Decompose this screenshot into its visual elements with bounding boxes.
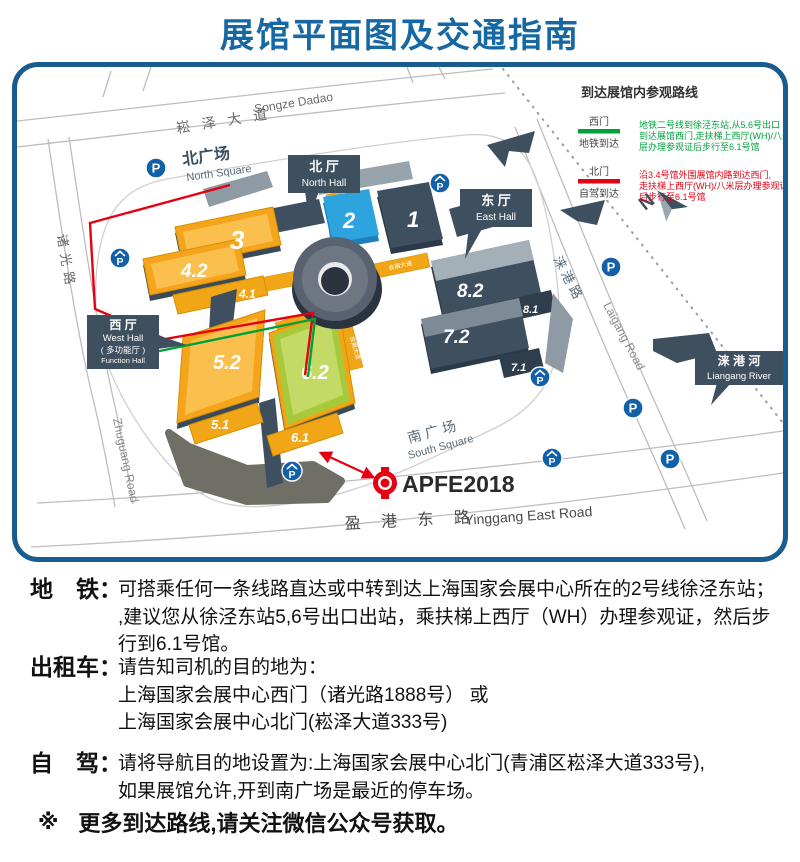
hall-8-2-label: 8.2 [457,281,484,302]
yinggang-road-label-cn: 盈 港 东 路 [344,508,478,533]
parking-covered-icon: P [430,173,450,193]
north-hall-label-cn: 北 厅 [309,159,339,174]
laigang-road-label-cn: 涞 港 路 [550,253,585,301]
apfe-logo-text: APFE2018 [402,471,515,497]
legend-drive-text: 沿3.4号馆外围展馆内路到达西门, [639,169,771,180]
svg-text:P: P [607,260,616,275]
legend-metro-mode: 地铁到达 [579,137,619,150]
legend-title: 到达展馆内参观路线 [581,85,698,100]
building-structure [560,200,605,225]
hall-4-2-label: 4.2 [180,261,208,282]
taxi-line-3: 上海国家会展中心北门(崧泽大道333号) [118,709,489,737]
parking-icon: P [601,257,621,277]
parking-icon: P [660,449,680,469]
yinggang-road-label-en: Yinggang East Road [464,503,593,528]
legend-metro-swatch [578,129,620,134]
svg-text:P: P [666,452,675,467]
north-square-label-cn: 北广场 [181,143,231,168]
svg-text:后步行至6.1号馆: 后步行至6.1号馆 [639,191,706,202]
legend-drive-swatch [578,179,620,184]
metro-line-2: ,建议您从徐泾东站5,6号出口出站，乘扶梯上西厅（WH）办理参观证，然后步 [118,604,775,632]
taxi-section-label: 出租车： [30,654,118,681]
parking-covered-icon: P [110,248,130,268]
legend-metro-gate: 西门 [589,115,609,128]
hall-4-1-label: 4.1 [238,287,256,301]
metro-section-label: 地 铁： [30,576,118,603]
svg-text:到达展馆西门,走扶梯上西厅(WH)/八米: 到达展馆西门,走扶梯上西厅(WH)/八米 [639,130,783,141]
venue-map: 崧 泽 大 道 Songze Dadao 诸光路 Zhuguang Road 涞… [17,67,783,557]
svg-text:P: P [436,181,443,193]
metro-section: 地 铁： 可搭乘任何一条线路直达或中转到达上海国家会展中心所在的2号线徐泾东站；… [30,576,775,659]
parking-icon: P [146,158,166,178]
east-hall-label-cn: 东 厅 [481,193,511,208]
parking-covered-icon: P [282,461,302,481]
east-hall-label-en: East Hall [476,212,516,223]
svg-text:P: P [548,456,555,468]
page: 展馆平面图及交通指南 [0,0,800,862]
metro-line-1: 可搭乘任何一条线路直达或中转到达上海国家会展中心所在的2号线徐泾东站； [118,576,775,604]
apfe-logo: APFE2018 [373,467,515,499]
west-hall-sub-en: Function Hall [101,356,145,365]
taxi-line-1: 请告知司机的目的地为： [118,654,489,682]
hall-5-2-label: 5.2 [213,352,241,374]
svg-text:走扶梯上西厅(WH)/八米层办理参观证: 走扶梯上西厅(WH)/八米层办理参观证 [639,180,783,191]
legend-drive-mode: 自驾到达 [579,187,619,200]
zhuguang-road-label-cn: 诸光路 [54,233,79,292]
hall-1-label: 1 [407,207,419,232]
hall-6-1-label: 6.1 [291,430,309,445]
hall-5-1-label: 5.1 [211,417,229,432]
taxi-line-2: 上海国家会展中心西门（诸光路1888号） 或 [118,682,489,710]
svg-text:P: P [629,401,638,416]
svg-text:P: P [116,256,123,268]
west-hall-label-cn: 西 厅 [109,318,136,332]
west-hall-label-en: West Hall [103,333,143,344]
hall-8-1-label: 8.1 [523,304,538,316]
taxi-section-body: 请告知司机的目的地为： 上海国家会展中心西门（诸光路1888号） 或 上海国家会… [118,654,489,737]
taxi-section: 出租车： 请告知司机的目的地为： 上海国家会展中心西门（诸光路1888号） 或 … [30,654,489,737]
svg-text:P: P [288,469,295,481]
svg-text:层办理参观证后步行至6.1号馆: 层办理参观证后步行至6.1号馆 [639,141,760,152]
west-hall-sub-cn: ( 多功能厅 ) [101,345,146,355]
page-title: 展馆平面图及交通指南 [0,8,800,57]
drive-line-2: 如果展馆允许,开到南广场是最近的停车场。 [118,778,705,806]
drive-section-body: 请将导航目的地设置为:上海国家会展中心北门(青浦区崧泽大道333号), 如果展馆… [118,750,705,805]
laigang-road-label-en: Laigang Road [600,300,647,373]
route-legend: 到达展馆内参观路线 西门 地铁到达 地铁二号线到徐泾东站,从5.6号出口 到达展… [578,85,783,202]
note-text: 更多到达路线,请关注微信公众号获取。 [78,806,458,838]
note-mark: ※ [38,810,58,835]
venue-map-panel: 崧 泽 大 道 Songze Dadao 诸光路 Zhuguang Road 涞… [12,62,788,562]
svg-text:P: P [152,161,161,176]
legend-drive-gate: 北门 [589,165,609,178]
hall-7-2-label: 7.2 [443,327,470,348]
liangang-river-label-en: Liangang River [707,371,771,382]
liangang-river-label-cn: 涞 港 河 [718,353,761,368]
parking-icon: P [623,398,643,418]
zhuguang-road-label-en: Zhuguang Road [110,417,142,504]
hall-7-1-label: 7.1 [511,362,526,374]
hall-2-label: 2 [342,208,356,233]
hall-3-label: 3 [230,225,245,255]
metro-section-body: 可搭乘任何一条线路直达或中转到达上海国家会展中心所在的2号线徐泾东站； ,建议您… [118,576,775,659]
footer-note: ※ 更多到达路线,请关注微信公众号获取。 [38,806,459,838]
drive-section: 自 驾： 请将导航目的地设置为:上海国家会展中心北门(青浦区崧泽大道333号),… [30,750,705,805]
drive-line-1: 请将导航目的地设置为:上海国家会展中心北门(青浦区崧泽大道333号), [118,750,705,778]
legend-metro-text: 地铁二号线到徐泾东站,从5.6号出口 [639,119,780,130]
parking-covered-icon: P [530,367,550,387]
parking-covered-icon: P [542,448,562,468]
svg-text:P: P [536,375,543,387]
drive-section-label: 自 驾： [30,750,118,777]
north-hall-label-en: North Hall [302,178,346,189]
